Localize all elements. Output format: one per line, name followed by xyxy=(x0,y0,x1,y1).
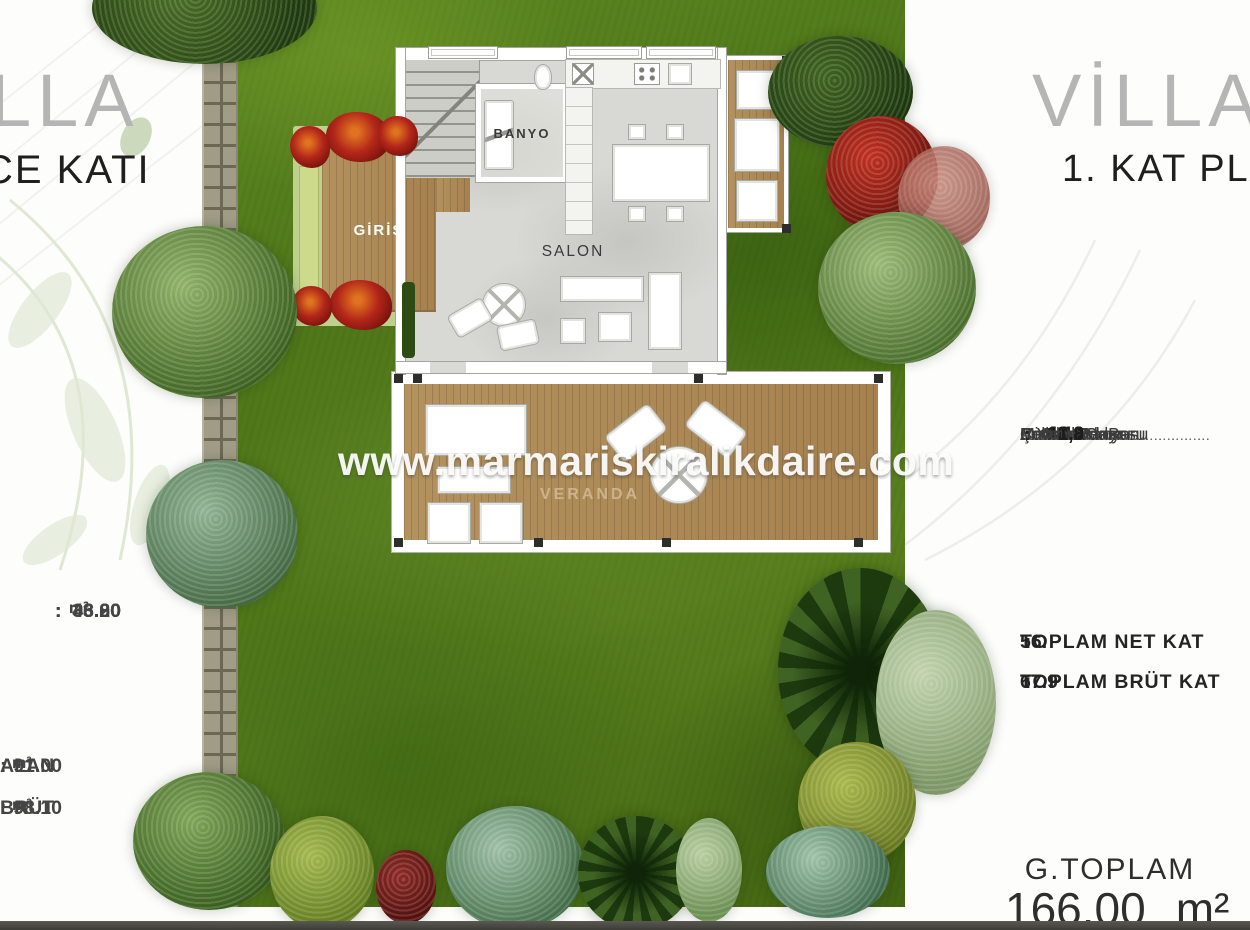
veranda-armchair xyxy=(427,502,471,544)
room-area-value: 1.8 xyxy=(1020,424,1084,446)
balcony-lounger xyxy=(736,180,778,222)
column-marker xyxy=(413,374,422,383)
salon-side-table xyxy=(598,312,632,342)
area-unit: m² xyxy=(69,600,89,618)
staircase xyxy=(406,60,480,178)
window xyxy=(646,46,716,59)
bush-bottom-lightgreen xyxy=(270,816,374,930)
kitchen-sink xyxy=(572,63,594,85)
total-value: 56. xyxy=(1020,631,1092,654)
flower-bush xyxy=(378,116,418,156)
column-marker xyxy=(694,374,703,383)
door-opening xyxy=(430,362,466,373)
wall-right xyxy=(718,48,726,374)
column-marker xyxy=(874,374,883,383)
window xyxy=(428,46,498,59)
tree-right-green xyxy=(818,212,976,364)
column-marker xyxy=(854,538,863,547)
dining-table xyxy=(612,144,710,202)
window-hedge xyxy=(402,282,415,358)
tree-left-upper xyxy=(112,226,297,398)
footer-bar xyxy=(0,921,1250,930)
entrance-planter xyxy=(299,166,319,298)
total-unit: m² xyxy=(12,797,32,815)
column-marker xyxy=(534,538,543,547)
dining-chair xyxy=(666,124,684,140)
site-plan-canvas: GİRİŞ BANYO SALON VERANDA xyxy=(0,0,1250,930)
room-label-banyo: BANYO xyxy=(478,126,566,141)
tree-left-middle xyxy=(146,460,298,608)
window xyxy=(566,46,642,59)
bush-bottom-bluegreen xyxy=(446,806,584,930)
dining-chair xyxy=(628,124,646,140)
villa-title: VİLLA xyxy=(1032,58,1250,143)
tree-bottom-left xyxy=(133,772,285,910)
bush-bottom-red xyxy=(376,850,436,924)
left-title-partial: LLA xyxy=(0,58,140,143)
dining-chair xyxy=(628,206,646,222)
left-subtitle-partial: CE KATI xyxy=(0,148,151,193)
column-marker xyxy=(782,224,791,233)
door-opening xyxy=(652,362,688,373)
toilet xyxy=(534,64,552,90)
salon-sofa xyxy=(648,272,682,350)
flower-bush xyxy=(292,286,332,326)
flower-bush xyxy=(330,280,392,330)
total-unit: m² xyxy=(12,755,32,773)
room-label-giris: GİRİŞ xyxy=(324,222,434,239)
kitchen-counter-side xyxy=(566,88,592,234)
total-value: 67.9 xyxy=(1020,671,1092,694)
fridge xyxy=(668,63,692,85)
balcony-lounger xyxy=(734,118,780,172)
bush-bottom-pale xyxy=(676,818,742,922)
stove xyxy=(634,63,660,85)
salon-sofa xyxy=(560,276,644,302)
room-label-veranda: VERANDA xyxy=(520,486,660,504)
salon-armchair xyxy=(560,318,586,344)
flower-bush xyxy=(290,126,330,168)
veranda-armchair xyxy=(479,502,523,544)
cobblestone-path xyxy=(202,0,238,907)
watermark-text: www.marmariskiralikdaire.com xyxy=(338,438,954,485)
column-marker xyxy=(662,538,671,547)
bush-right-teal xyxy=(766,826,890,918)
column-marker xyxy=(394,538,403,547)
column-marker xyxy=(394,374,403,383)
floor-subtitle: 1. KAT PLA xyxy=(1062,148,1250,191)
dining-chair xyxy=(666,206,684,222)
room-label-salon: SALON xyxy=(518,243,628,261)
